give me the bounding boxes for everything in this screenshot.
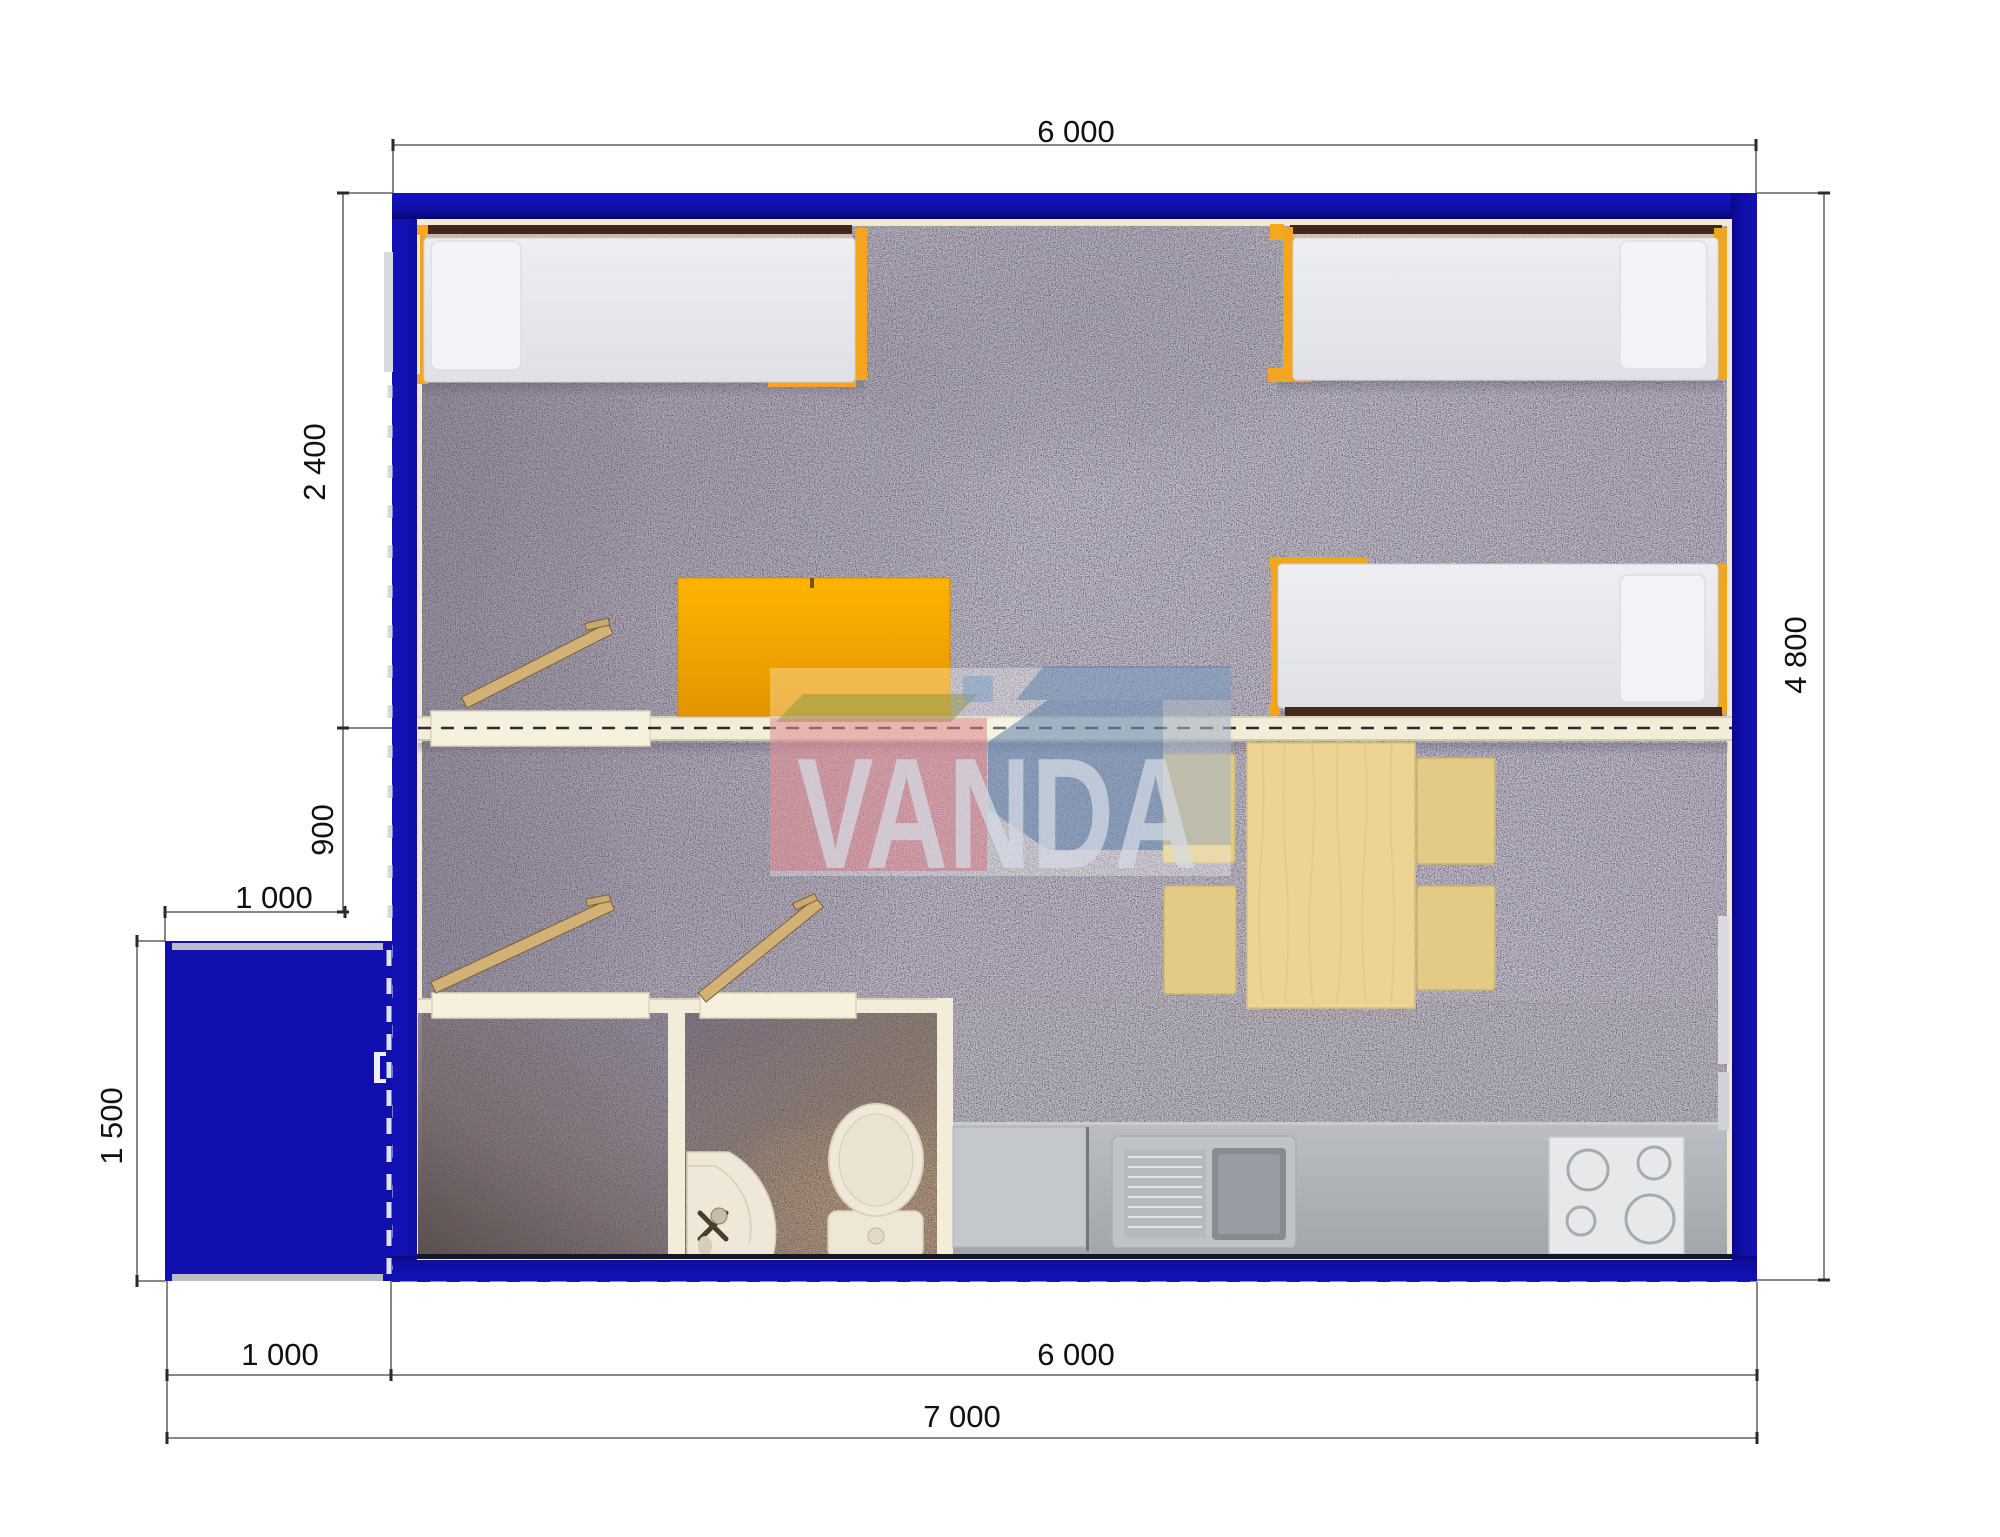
svg-text:1 000: 1 000 (235, 880, 313, 915)
svg-text:6 000: 6 000 (1037, 114, 1115, 149)
svg-text:VANDA: VANDA (797, 726, 1197, 902)
svg-text:2 400: 2 400 (297, 423, 332, 501)
svg-text:900: 900 (305, 804, 340, 856)
svg-text:1 500: 1 500 (94, 1087, 129, 1165)
svg-text:6 000: 6 000 (1037, 1337, 1115, 1372)
svg-text:7 000: 7 000 (923, 1399, 1001, 1434)
svg-text:4 800: 4 800 (1778, 616, 1813, 694)
svg-text:1 000: 1 000 (241, 1337, 319, 1372)
